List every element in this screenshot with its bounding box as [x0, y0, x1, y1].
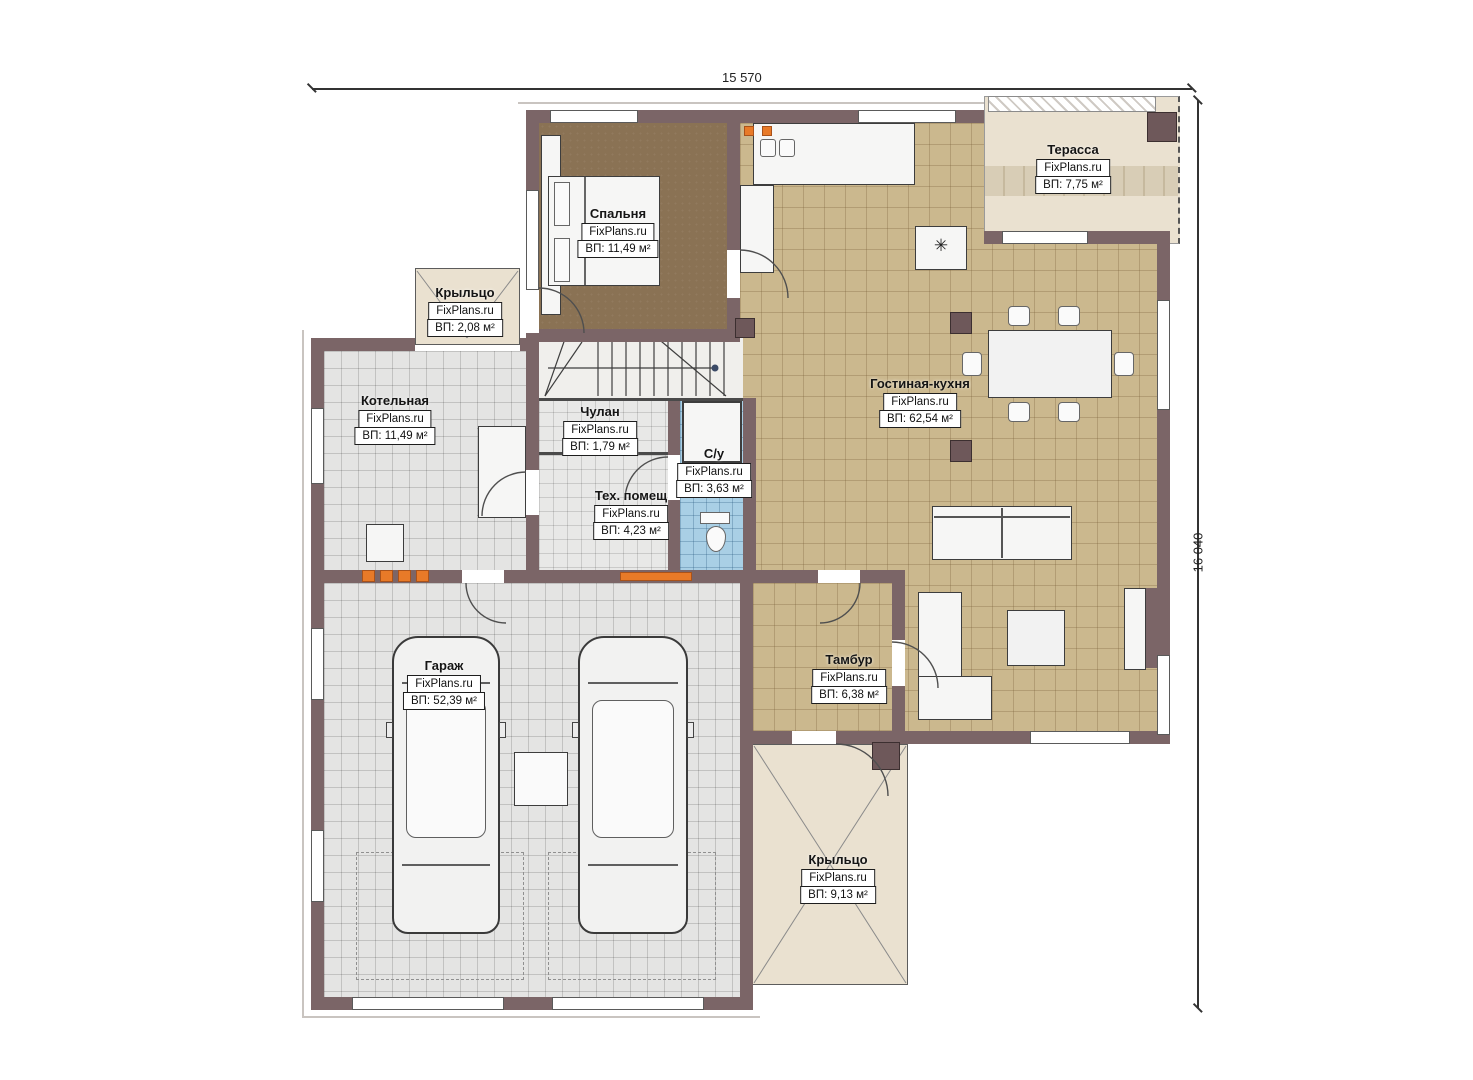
room-area: ВП: 3,63 м²: [676, 480, 752, 498]
room-area: ВП: 62,54 м²: [879, 410, 961, 428]
room-name: Тех. помещ: [595, 488, 667, 503]
room-name: Гостиная-кухня: [870, 376, 970, 391]
room-name: Крыльцо: [808, 852, 867, 867]
watermark: FixPlans.ru: [407, 675, 481, 693]
room-label-closet: Чулан FixPlans.ru ВП: 1,79 м²: [562, 404, 638, 456]
room-name: Гараж: [425, 658, 464, 673]
room-name: Терасса: [1047, 142, 1099, 157]
room-label-living-kitchen: Гостиная-кухня FixPlans.ru ВП: 62,54 м²: [870, 376, 970, 428]
watermark: FixPlans.ru: [1036, 159, 1110, 177]
floor-plan-canvas: ✳: [0, 0, 1473, 1080]
room-label-terrace: Терасса FixPlans.ru ВП: 7,75 м²: [1035, 142, 1111, 194]
room-name: Котельная: [361, 393, 429, 408]
watermark: FixPlans.ru: [428, 302, 502, 320]
watermark: FixPlans.ru: [594, 505, 668, 523]
room-label-vestibule: Тамбур FixPlans.ru ВП: 6,38 м²: [811, 652, 887, 704]
watermark: FixPlans.ru: [812, 669, 886, 687]
room-name: Тамбур: [825, 652, 872, 667]
room-name: Крыльцо: [435, 285, 494, 300]
room-label-garage: Гараж FixPlans.ru ВП: 52,39 м²: [403, 658, 485, 710]
watermark: FixPlans.ru: [563, 421, 637, 439]
dimension-text-right: 16 040: [1190, 533, 1205, 573]
room-area: ВП: 6,38 м²: [811, 686, 887, 704]
room-area: ВП: 7,75 м²: [1035, 176, 1111, 194]
room-label-boiler: Котельная FixPlans.ru ВП: 11,49 м²: [354, 393, 435, 445]
room-area: ВП: 1,79 м²: [562, 438, 638, 456]
room-area: ВП: 11,49 м²: [577, 240, 658, 258]
room-label-porch-left: Крыльцо FixPlans.ru ВП: 2,08 м²: [427, 285, 503, 337]
room-label-bathroom: С/у FixPlans.ru ВП: 3,63 м²: [676, 446, 752, 498]
dimension-line-top: [312, 88, 1192, 90]
room-label-bedroom: Спальня FixPlans.ru ВП: 11,49 м²: [577, 206, 658, 258]
room-label-tech: Тех. помещ FixPlans.ru ВП: 4,23 м²: [593, 488, 669, 540]
door-arcs: [0, 0, 1473, 1080]
watermark: FixPlans.ru: [581, 223, 655, 241]
room-name: Спальня: [590, 206, 646, 221]
room-name: Чулан: [580, 404, 620, 419]
room-area: ВП: 11,49 м²: [354, 427, 435, 445]
room-area: ВП: 2,08 м²: [427, 319, 503, 337]
watermark: FixPlans.ru: [883, 393, 957, 411]
room-name: С/у: [704, 446, 724, 461]
room-area: ВП: 4,23 м²: [593, 522, 669, 540]
room-area: ВП: 52,39 м²: [403, 692, 485, 710]
room-area: ВП: 9,13 м²: [800, 886, 876, 904]
watermark: FixPlans.ru: [801, 869, 875, 887]
watermark: FixPlans.ru: [358, 410, 432, 428]
room-label-porch-bottom: Крыльцо FixPlans.ru ВП: 9,13 м²: [800, 852, 876, 904]
watermark: FixPlans.ru: [677, 463, 751, 481]
dimension-text-top: 15 570: [722, 70, 762, 85]
